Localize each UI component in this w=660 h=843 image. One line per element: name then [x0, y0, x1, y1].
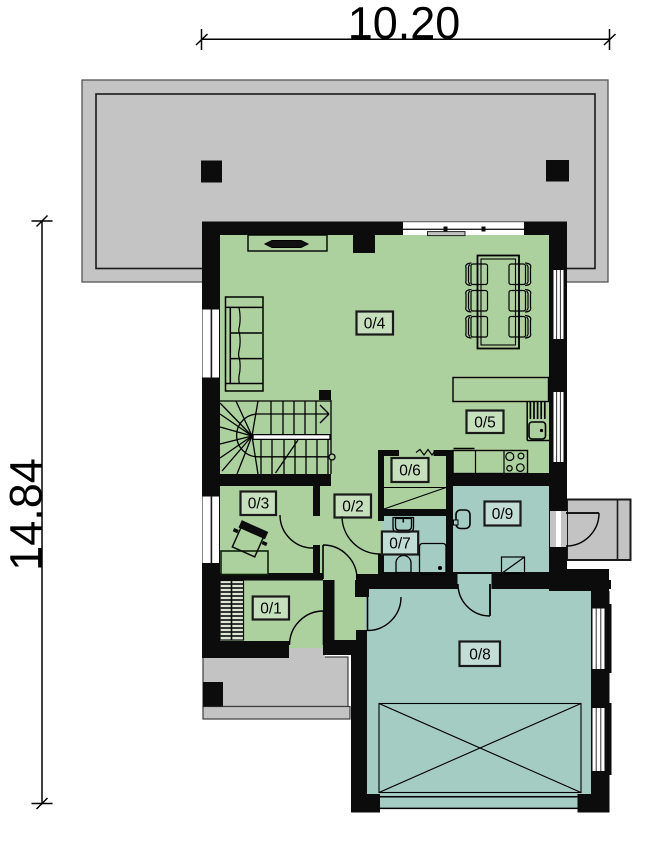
svg-text:0/3: 0/3	[248, 496, 270, 513]
svg-text:0/6: 0/6	[399, 463, 421, 480]
svg-text:0/1: 0/1	[260, 601, 282, 618]
svg-text:0/9: 0/9	[492, 506, 514, 523]
svg-text:0/7: 0/7	[389, 536, 411, 553]
svg-text:0/5: 0/5	[474, 415, 496, 432]
svg-text:0/4: 0/4	[364, 316, 386, 333]
svg-text:10.20: 10.20	[348, 0, 461, 49]
svg-text:14.84: 14.84	[1, 458, 52, 571]
svg-text:0/2: 0/2	[342, 499, 364, 516]
svg-text:0/8: 0/8	[469, 647, 491, 664]
